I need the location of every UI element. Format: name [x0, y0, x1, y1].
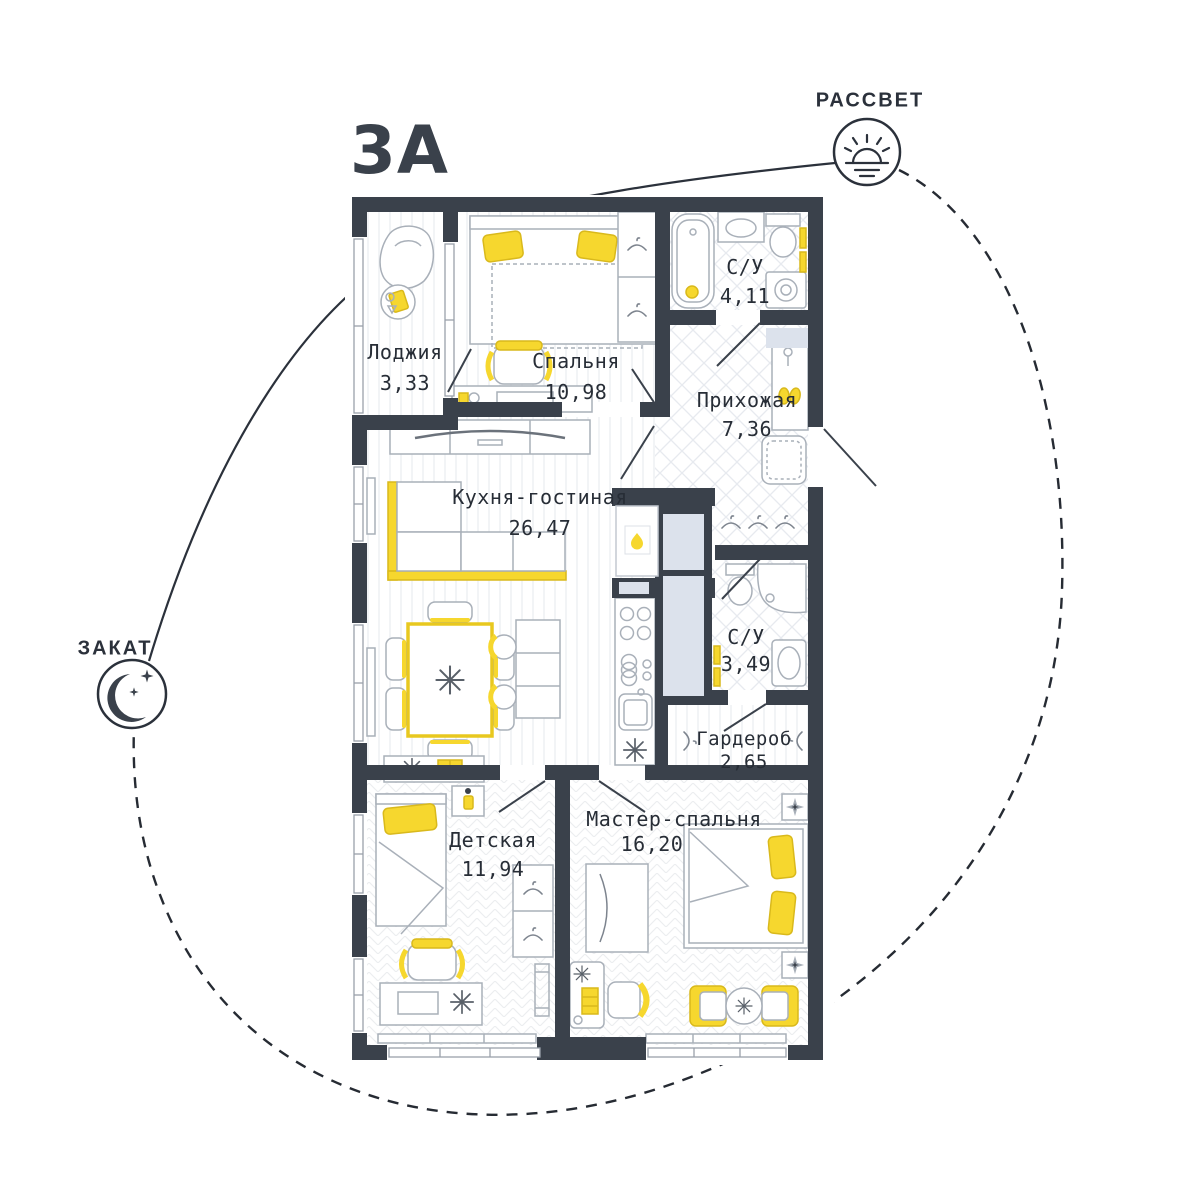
- floorplan-svg: [0, 0, 1200, 1200]
- sunset-label: ЗАКАТ: [78, 638, 153, 661]
- room-label-loggia-name: Лоджия: [367, 340, 442, 364]
- room-label-bedroom-name: Спальня: [532, 349, 620, 373]
- room-label-loggia-area: 3,33: [380, 371, 430, 395]
- room-label-bathroom-2-name: С/У: [727, 625, 765, 649]
- room-label-hallway-area: 7,36: [722, 417, 772, 441]
- floorplan-canvas: 3А РАССВЕТ ЗАКАТ Лоджия 3,33 Спальня 10,…: [0, 0, 1200, 1200]
- room-label-master-bedroom-area: 16,20: [621, 832, 684, 856]
- furniture-kitchen-counter: [615, 598, 655, 765]
- room-label-kids-room-area: 11,94: [462, 857, 525, 881]
- room-label-hallway-name: Прихожая: [697, 388, 797, 412]
- sunrise-icon: [834, 119, 900, 185]
- room-label-master-bedroom-name: Мастер-спальня: [586, 807, 762, 831]
- sunset-icon: [98, 660, 166, 728]
- room-label-bedroom-area: 10,98: [545, 380, 608, 404]
- boiler: [616, 506, 658, 576]
- room-label-bathroom-2-area: 3,49: [721, 652, 771, 676]
- room-label-wardrobe-area: 2,65: [720, 751, 768, 773]
- room-label-kitchen-living-area: 26,47: [509, 516, 572, 540]
- sunrise-label: РАССВЕТ: [816, 90, 924, 113]
- room-label-bathroom-1-area: 4,11: [720, 284, 770, 308]
- room-label-bathroom-1-name: С/У: [726, 255, 764, 279]
- plan-title: 3А: [350, 118, 449, 184]
- room-label-kitchen-living-name: Кухня-гостиная: [452, 485, 628, 509]
- room-label-wardrobe-name: Гардероб: [696, 728, 792, 750]
- room-label-kids-room-name: Детская: [449, 828, 537, 852]
